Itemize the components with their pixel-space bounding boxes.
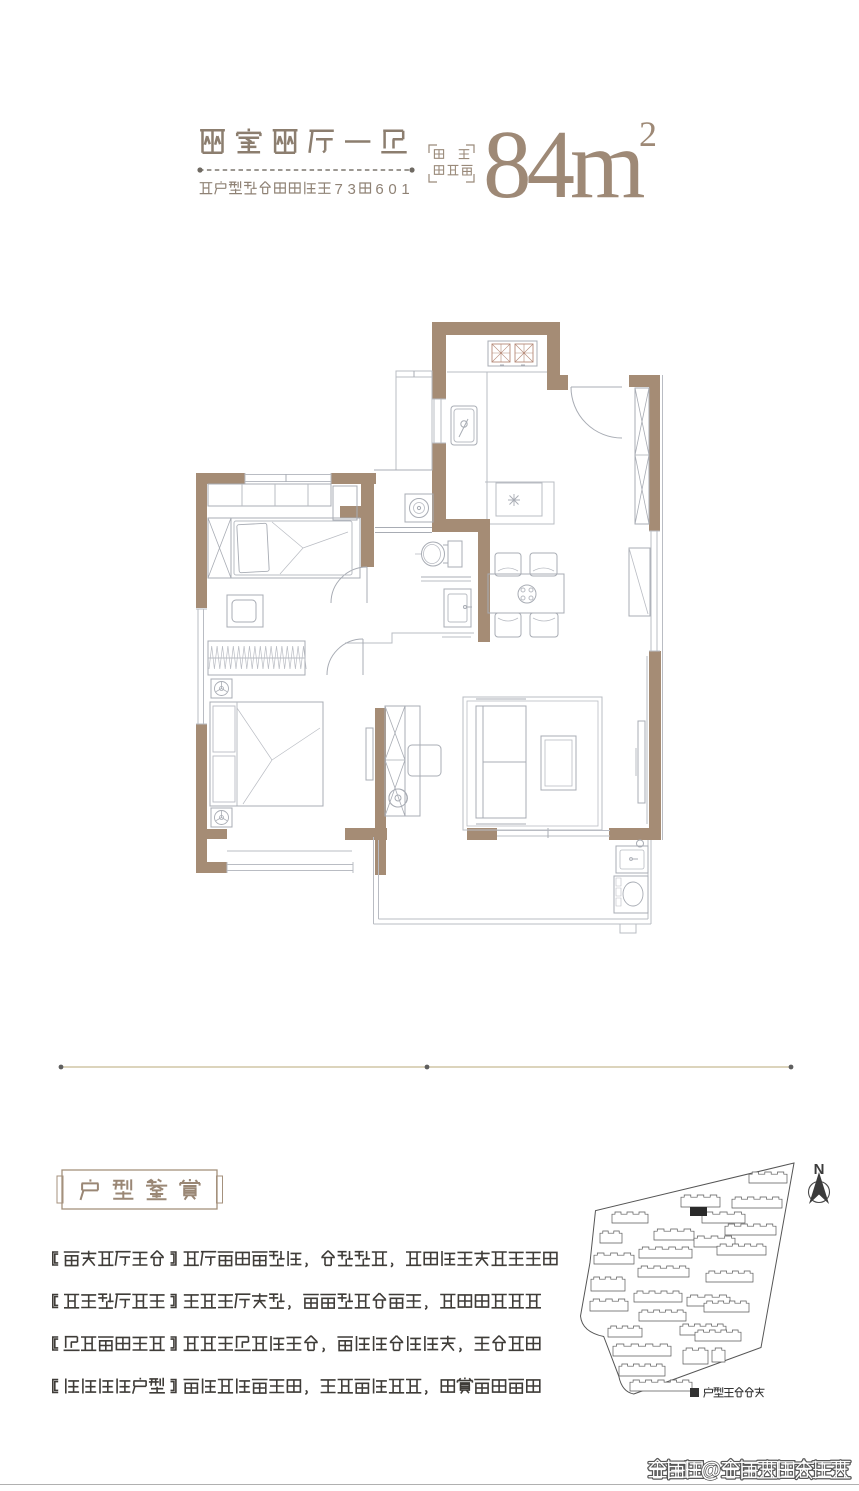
svg-text:1: 1 (401, 181, 409, 198)
svg-text:@: @ (701, 1459, 721, 1482)
svg-text:3: 3 (348, 181, 356, 198)
svg-text:6: 6 (375, 181, 383, 198)
svg-text:7: 7 (335, 181, 343, 198)
svg-text:2: 2 (639, 114, 657, 154)
svg-text:0: 0 (388, 181, 396, 198)
svg-text:84m: 84m (483, 111, 644, 218)
